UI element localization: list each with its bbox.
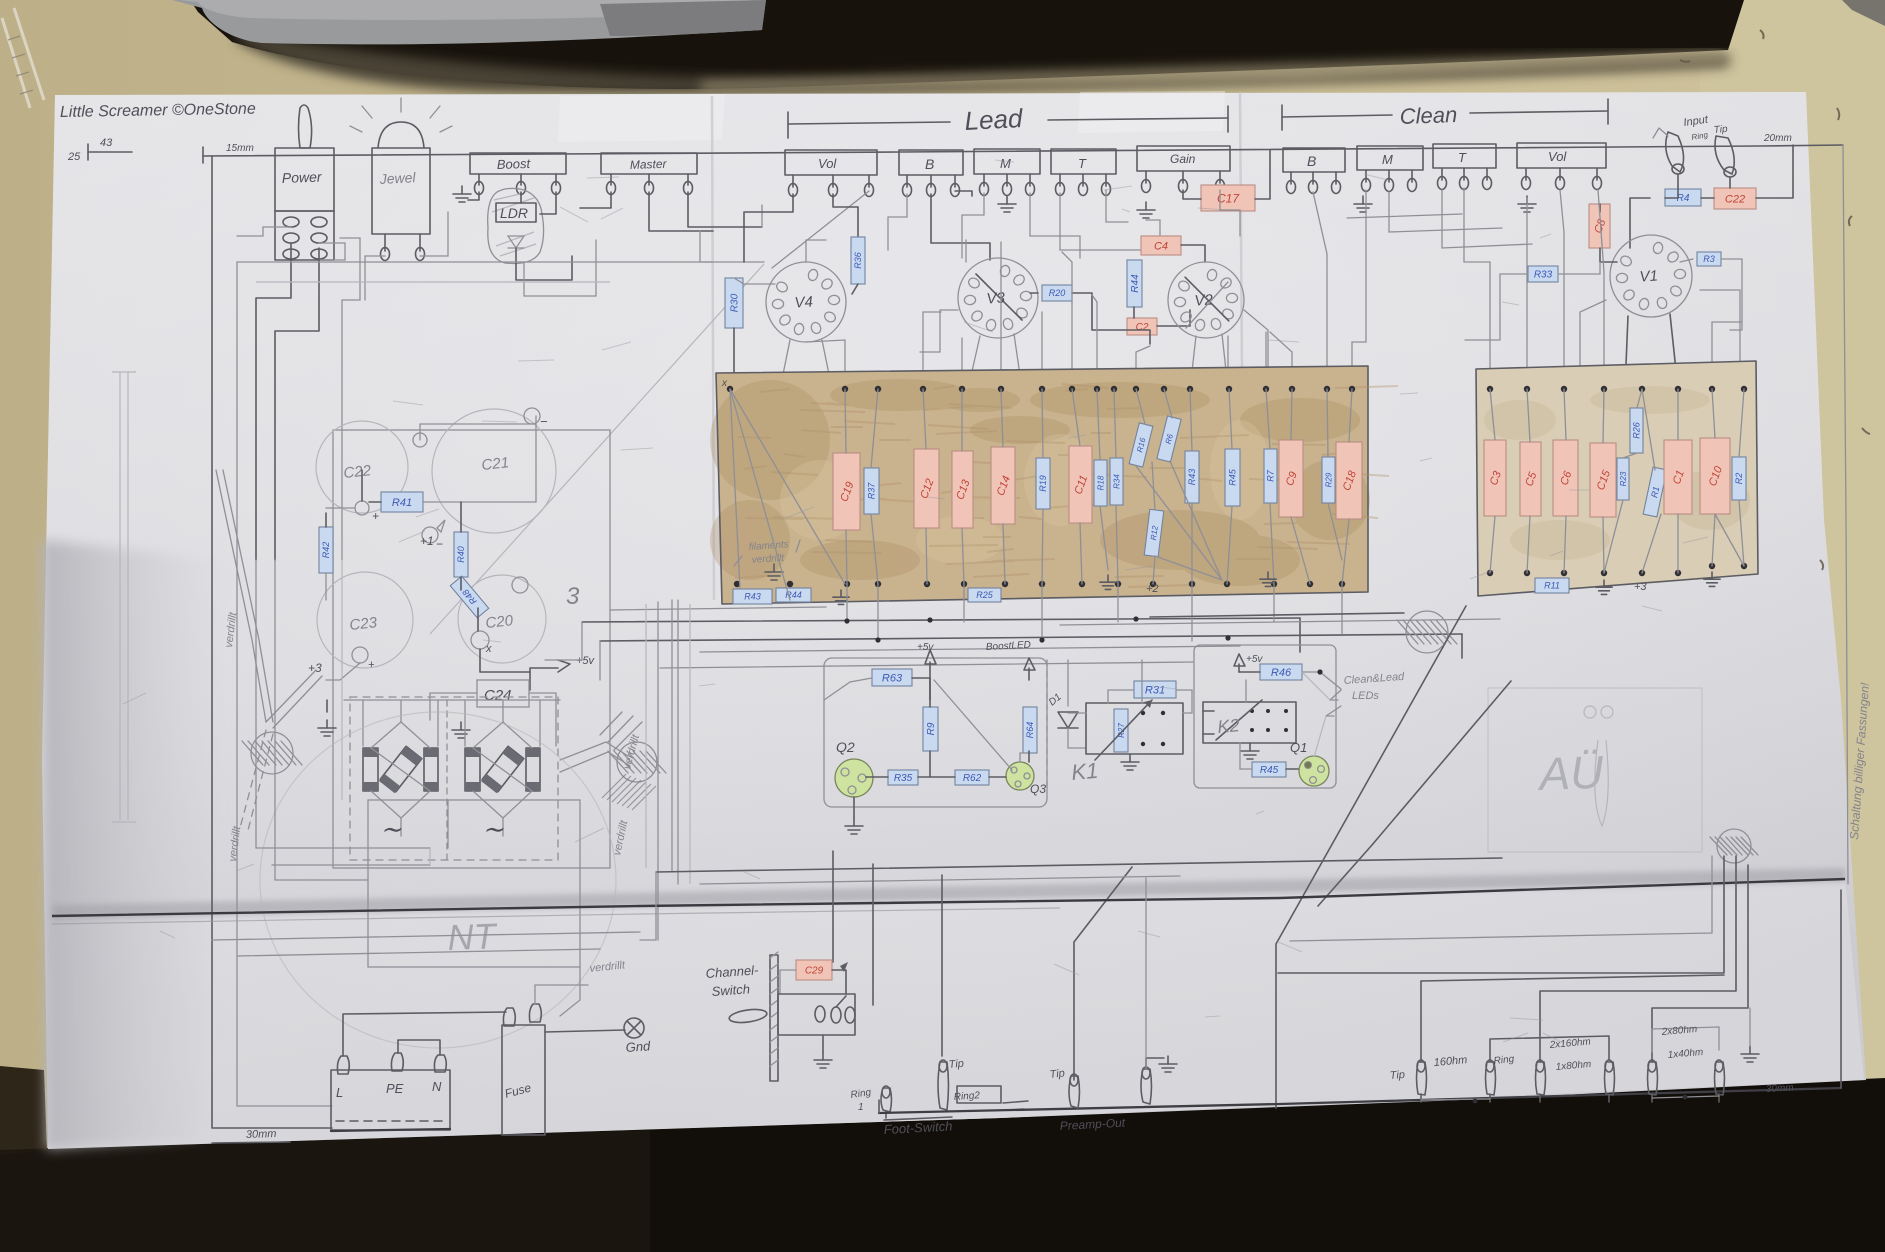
svg-text:Tip: Tip — [948, 1058, 964, 1071]
svg-text:20mm: 20mm — [1763, 133, 1792, 144]
svg-text:Tip: Tip — [1049, 1067, 1065, 1081]
svg-text:R23: R23 — [1619, 471, 1628, 486]
svg-text:R34: R34 — [1112, 474, 1121, 489]
svg-text:+5v: +5v — [1246, 654, 1263, 665]
svg-text:Vol: Vol — [1548, 149, 1567, 164]
svg-text:R30: R30 — [730, 293, 741, 312]
svg-text:C23: C23 — [349, 614, 379, 634]
svg-text:Gnd: Gnd — [625, 1038, 651, 1055]
svg-text:+3: +3 — [1634, 581, 1647, 593]
svg-text:Switch: Switch — [711, 981, 750, 999]
svg-text:B: B — [925, 156, 934, 172]
svg-text:R3: R3 — [1703, 254, 1715, 264]
svg-text:R18: R18 — [1096, 475, 1105, 490]
svg-text:C29: C29 — [805, 966, 824, 977]
svg-text:C22: C22 — [343, 462, 373, 482]
svg-text:R64: R64 — [1025, 722, 1035, 739]
svg-text:30mm: 30mm — [246, 1128, 277, 1141]
svg-text:∼: ∼ — [482, 814, 504, 844]
svg-text:+2: +2 — [1146, 583, 1159, 595]
svg-text:C24: C24 — [484, 687, 512, 704]
svg-text:R37: R37 — [867, 482, 877, 500]
svg-text:Lead: Lead — [964, 103, 1025, 136]
svg-text:T: T — [1078, 156, 1087, 171]
svg-text:Clean: Clean — [1399, 102, 1457, 129]
svg-text:R45: R45 — [1260, 765, 1279, 776]
svg-text:R44: R44 — [1130, 274, 1141, 293]
svg-text:R26: R26 — [1632, 422, 1642, 439]
svg-text:R33: R33 — [1534, 270, 1553, 281]
svg-text:R29: R29 — [1324, 472, 1333, 487]
svg-text:V4: V4 — [794, 293, 814, 311]
svg-text:R35: R35 — [894, 773, 913, 784]
svg-text:B: B — [1307, 153, 1316, 169]
svg-text:Power: Power — [282, 169, 324, 186]
svg-text:N: N — [432, 1079, 442, 1094]
svg-text:R19: R19 — [1038, 475, 1048, 492]
svg-text:R45: R45 — [1228, 468, 1238, 486]
svg-text:x: x — [721, 378, 728, 389]
svg-text:Little Screamer ©OneStone: Little Screamer ©OneStone — [60, 101, 256, 121]
svg-text:C21: C21 — [481, 454, 510, 474]
svg-text:BoostLED: BoostLED — [986, 640, 1032, 653]
svg-text:Jewel: Jewel — [378, 169, 416, 187]
svg-text:R36: R36 — [853, 252, 863, 269]
svg-text:V3: V3 — [986, 289, 1006, 307]
svg-text:+5v: +5v — [576, 655, 596, 667]
svg-text:R2: R2 — [1734, 473, 1744, 485]
svg-text:C20: C20 — [485, 612, 515, 632]
svg-text:L: L — [336, 1085, 343, 1100]
svg-text:Master: Master — [630, 157, 668, 172]
svg-text:R12: R12 — [1149, 525, 1160, 541]
svg-text:−: − — [436, 537, 443, 551]
svg-text:R11: R11 — [1544, 581, 1560, 591]
svg-text:+1: +1 — [420, 534, 434, 548]
svg-text:K2: K2 — [1217, 715, 1241, 737]
svg-text:Tip: Tip — [1389, 1069, 1405, 1082]
svg-text:M: M — [1000, 156, 1011, 171]
svg-text:C4: C4 — [1154, 240, 1168, 252]
svg-text:1: 1 — [858, 1102, 864, 1113]
svg-text:Boost: Boost — [497, 156, 532, 172]
svg-text:+: + — [368, 659, 375, 671]
svg-text:Q3: Q3 — [1030, 782, 1046, 796]
svg-text:Q1: Q1 — [1290, 740, 1307, 755]
svg-text:R40: R40 — [456, 546, 466, 563]
svg-text:R43: R43 — [744, 592, 761, 602]
svg-text:R7: R7 — [1266, 469, 1276, 481]
svg-text:Ring2: Ring2 — [953, 1090, 980, 1103]
svg-text:−: − — [540, 414, 548, 429]
svg-text:+: + — [372, 509, 379, 523]
svg-text:43: 43 — [100, 137, 113, 149]
svg-text:∼: ∼ — [380, 814, 402, 844]
svg-text:x: x — [485, 643, 492, 655]
svg-text:+3: +3 — [308, 661, 322, 675]
svg-text:Tip: Tip — [1713, 124, 1728, 136]
svg-text:Vol: Vol — [818, 156, 837, 171]
svg-text:K1: K1 — [1070, 758, 1099, 785]
svg-text:25: 25 — [67, 151, 81, 163]
svg-text:3: 3 — [566, 583, 580, 610]
svg-text:R62: R62 — [963, 773, 982, 784]
svg-text:R43: R43 — [1187, 469, 1197, 486]
svg-text:Q2: Q2 — [836, 739, 855, 755]
svg-text:R63: R63 — [882, 672, 903, 684]
svg-text:verdrillt: verdrillt — [751, 553, 785, 566]
svg-text:15mm: 15mm — [226, 143, 254, 154]
svg-text:C2: C2 — [1136, 322, 1149, 333]
svg-text:R42: R42 — [321, 542, 331, 559]
svg-text:+5v: +5v — [917, 642, 934, 653]
svg-text:R9: R9 — [926, 722, 937, 735]
svg-text:LEDs: LEDs — [1352, 690, 1379, 702]
svg-text:Ring: Ring — [1493, 1054, 1515, 1067]
svg-text:R46: R46 — [1271, 667, 1292, 679]
svg-text:M: M — [1382, 152, 1393, 167]
svg-text:R41: R41 — [392, 497, 412, 509]
svg-text:R25: R25 — [976, 590, 994, 600]
svg-text:T: T — [1458, 150, 1467, 165]
svg-text:LDR: LDR — [500, 205, 528, 221]
svg-text:30mm: 30mm — [1766, 1083, 1794, 1095]
svg-text:R20: R20 — [1049, 288, 1066, 298]
svg-text:Gain: Gain — [1170, 152, 1196, 166]
svg-text:PE: PE — [386, 1081, 404, 1096]
svg-text:V1: V1 — [1639, 267, 1659, 285]
svg-text:C22: C22 — [1725, 193, 1745, 205]
